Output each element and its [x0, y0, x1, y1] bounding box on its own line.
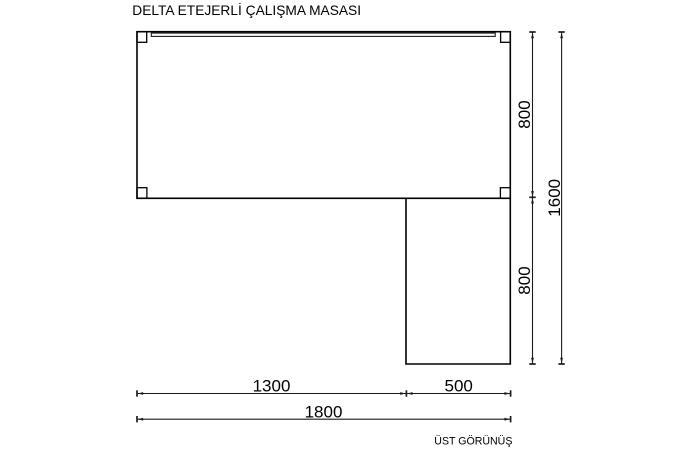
svg-text:800: 800 [515, 266, 534, 294]
svg-text:1300: 1300 [253, 377, 291, 396]
svg-text:500: 500 [445, 377, 473, 396]
svg-text:1800: 1800 [305, 402, 343, 421]
svg-text:DELTA ETEJERLİ ÇALIŞMA MASASI: DELTA ETEJERLİ ÇALIŞMA MASASI [132, 1, 361, 18]
svg-text:1600: 1600 [545, 179, 564, 217]
svg-text:ÜST GÖRÜNÜŞ: ÜST GÖRÜNÜŞ [434, 436, 512, 448]
svg-text:800: 800 [515, 100, 534, 128]
